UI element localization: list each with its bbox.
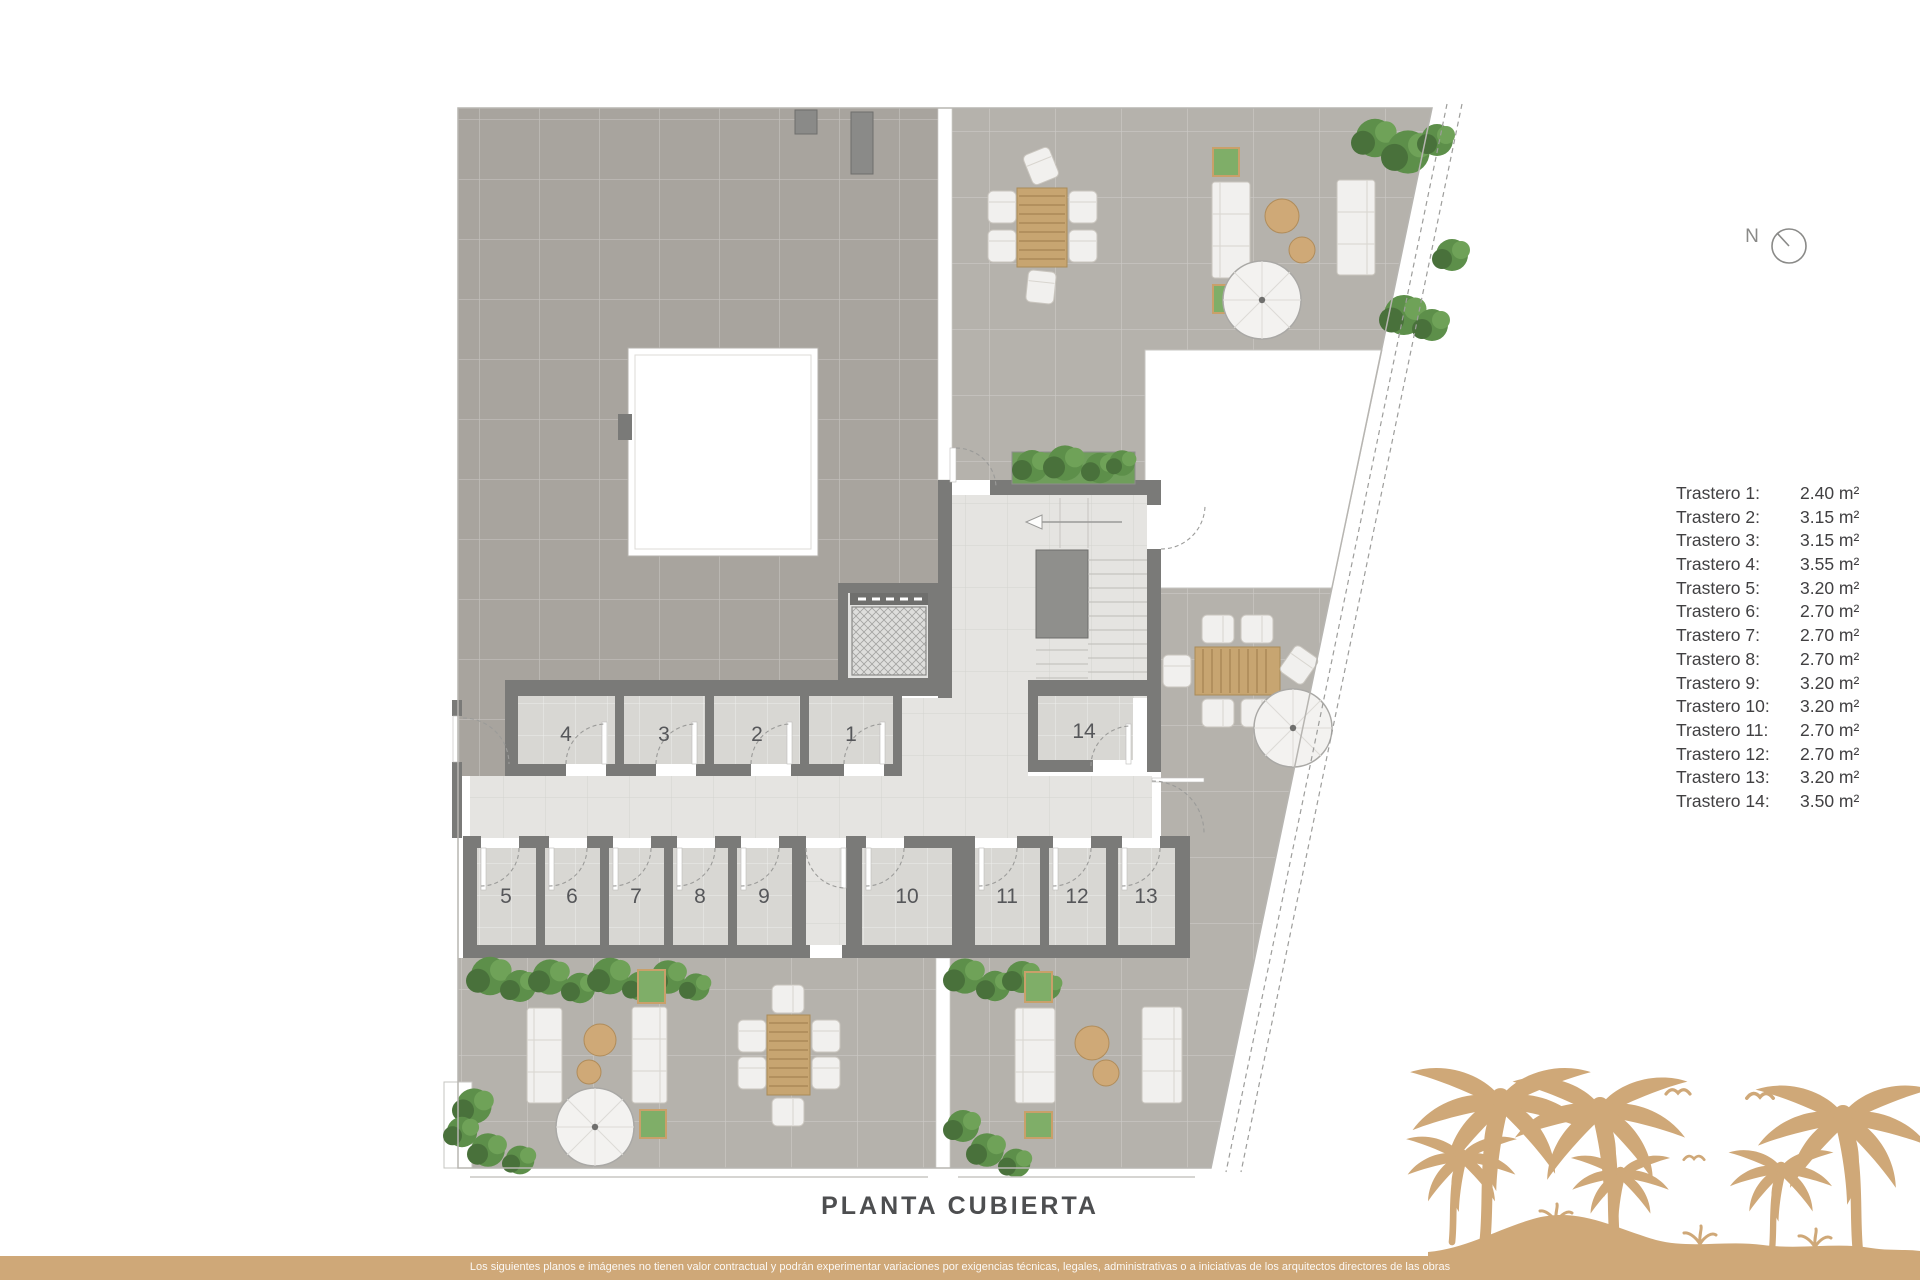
legend-row: Trastero 4:3.55 m² (1676, 553, 1859, 577)
legend-row: Trastero 10:3.20 m² (1676, 695, 1859, 719)
legend-row: Trastero 1:2.40 m² (1676, 482, 1859, 506)
legend-label: Trastero 4: (1676, 553, 1800, 577)
legend-row: Trastero 8:2.70 m² (1676, 648, 1859, 672)
bird-icon (1666, 1090, 1690, 1094)
legend-label: Trastero 12: (1676, 743, 1800, 767)
bird-icon (1684, 1156, 1704, 1160)
room-label-1: 1 (845, 723, 857, 746)
legend-value: 2.70 m² (1800, 600, 1859, 624)
legend-label: Trastero 8: (1676, 648, 1800, 672)
legend-label: Trastero 7: (1676, 624, 1800, 648)
room-label-14: 14 (1072, 720, 1096, 743)
legend-label: Trastero 9: (1676, 672, 1800, 696)
palm-icon (1727, 1148, 1836, 1250)
palm-trees-decoration (1404, 1064, 1920, 1258)
legend-value: 3.15 m² (1800, 529, 1859, 553)
legend-value: 3.20 m² (1800, 766, 1859, 790)
legend-label: Trastero 2: (1676, 506, 1800, 530)
palm-icon (1404, 1134, 1519, 1242)
void-left (618, 348, 818, 556)
terrace-divider-top (938, 108, 952, 480)
legend-value: 2.70 m² (1800, 719, 1859, 743)
floor-plan: 1 2 3 4 5 6 7 8 9 10 11 12 13 14 N (0, 0, 1920, 1280)
room-label-3: 3 (658, 723, 670, 746)
legend-label: Trastero 5: (1676, 577, 1800, 601)
legend-label: Trastero 11: (1676, 719, 1800, 743)
elevator (838, 583, 938, 688)
legend-row: Trastero 11:2.70 m² (1676, 719, 1859, 743)
disclaimer-text: Los siguientes planos e imágenes no tien… (0, 1256, 1920, 1279)
legend-row: Trastero 12:2.70 m² (1676, 743, 1859, 767)
page-title: PLANTA CUBIERTA (710, 1192, 1210, 1221)
room-label-6: 6 (566, 885, 578, 908)
planter-lobby (1012, 445, 1136, 484)
room-label-7: 7 (630, 885, 642, 908)
legend-row: Trastero 13:3.20 m² (1676, 766, 1859, 790)
room-label-9: 9 (758, 885, 770, 908)
legend-label: Trastero 1: (1676, 482, 1800, 506)
legend-label: Trastero 3: (1676, 529, 1800, 553)
bird-icon (1747, 1094, 1773, 1099)
legend-label: Trastero 13: (1676, 766, 1800, 790)
legend-value: 2.40 m² (1800, 482, 1859, 506)
legend-row: Trastero 9:3.20 m² (1676, 672, 1859, 696)
legend-label: Trastero 14: (1676, 790, 1800, 814)
legend-row: Trastero 7:2.70 m² (1676, 624, 1859, 648)
room-label-5: 5 (500, 885, 512, 908)
legend-value: 2.70 m² (1800, 648, 1859, 672)
room-label-2: 2 (751, 723, 763, 746)
legend-row: Trastero 2:3.15 m² (1676, 506, 1859, 530)
legend-value: 3.20 m² (1800, 695, 1859, 719)
legend-row: Trastero 14:3.50 m² (1676, 790, 1859, 814)
legend-label: Trastero 10: (1676, 695, 1800, 719)
page: 1 2 3 4 5 6 7 8 9 10 11 12 13 14 N (0, 0, 1920, 1280)
room-label-13: 13 (1134, 885, 1157, 908)
legend-value: 3.20 m² (1800, 577, 1859, 601)
room-label-11: 11 (996, 885, 1018, 908)
legend-row: Trastero 3:3.15 m² (1676, 529, 1859, 553)
room-label-4: 4 (560, 723, 572, 746)
compass-north-icon: N (1745, 226, 1806, 263)
legend-value: 3.50 m² (1800, 790, 1859, 814)
room-label-8: 8 (694, 885, 706, 908)
room-label-10: 10 (895, 885, 918, 908)
disclaimer-bar: Los siguientes planos e imágenes no tien… (0, 1256, 1920, 1280)
legend-value: 3.55 m² (1800, 553, 1859, 577)
legend-row: Trastero 6:2.70 m² (1676, 600, 1859, 624)
room-label-12: 12 (1065, 885, 1088, 908)
legend-row: Trastero 5:3.20 m² (1676, 577, 1859, 601)
legend-value: 2.70 m² (1800, 743, 1859, 767)
legend-label: Trastero 6: (1676, 600, 1800, 624)
legend-value: 3.20 m² (1800, 672, 1859, 696)
legend-value: 2.70 m² (1800, 624, 1859, 648)
legend-value: 3.15 m² (1800, 506, 1859, 530)
void-right (1145, 350, 1382, 588)
legend: Trastero 1:2.40 m² Trastero 2:3.15 m² Tr… (1676, 482, 1859, 814)
compass-label: N (1745, 226, 1759, 247)
